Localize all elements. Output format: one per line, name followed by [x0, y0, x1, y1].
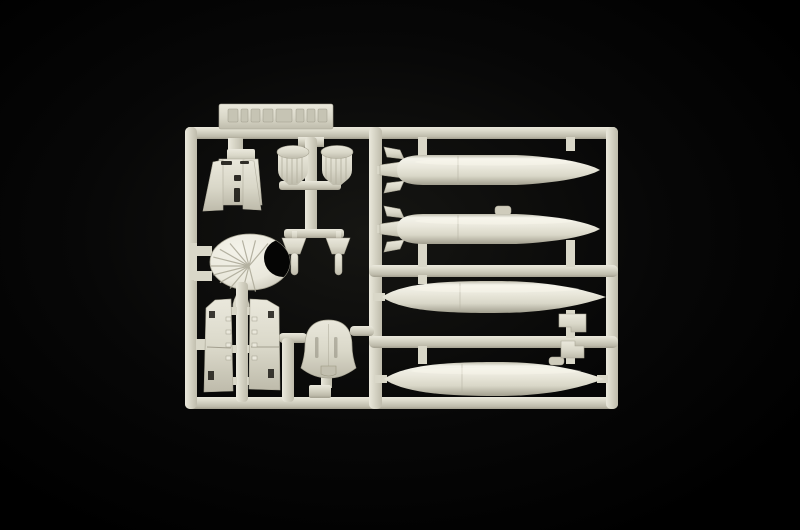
embossed-character [276, 109, 292, 122]
sprue-gate [418, 346, 427, 364]
sprue-gate [190, 243, 197, 280]
part-console-right [249, 299, 280, 390]
photo-canvas [0, 0, 800, 530]
frame-seat-connector-right [350, 326, 374, 336]
sprue-photo [0, 0, 800, 530]
console-runner [236, 282, 248, 402]
embossed-character [241, 109, 248, 122]
sprue-gate [418, 137, 427, 157]
part-console-left [204, 299, 233, 392]
embossed-character [307, 109, 315, 122]
frame-seat-runner [282, 338, 294, 402]
embossed-character [263, 109, 273, 122]
embossed-character [228, 109, 238, 122]
embossed-character [251, 109, 260, 122]
frame-rail-tank-divider-upper [369, 265, 618, 277]
sprue-gate [566, 240, 575, 267]
sprue-gate [566, 137, 575, 151]
frame-rail-bottom [185, 397, 618, 409]
sprue-gate [418, 242, 427, 267]
embossed-character [296, 109, 304, 122]
embossed-character [318, 109, 327, 122]
sprue-gate [418, 275, 427, 284]
sprue-gate [196, 339, 205, 350]
part-number-tab [219, 104, 333, 129]
